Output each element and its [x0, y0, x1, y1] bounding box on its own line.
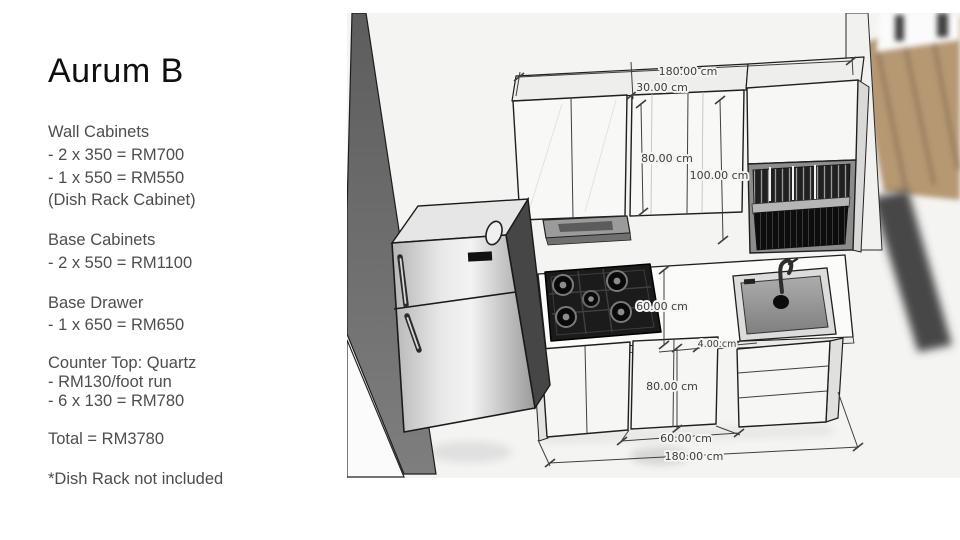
section-heading: Wall Cabinets: [48, 121, 338, 144]
dimension-label-overall-top: 180.00 cm: [659, 65, 718, 78]
price-line: (Dish Rack Cabinet): [48, 189, 338, 212]
price-line: - RM130/foot run: [48, 373, 338, 392]
dimension-label-base-height: 80.00 cm: [646, 380, 698, 393]
wall-cabinet-left: [513, 95, 627, 220]
refrigerator: [392, 199, 550, 432]
section-total: Total = RM3780: [48, 428, 338, 451]
section-heading: Counter Top: Quartz: [48, 354, 338, 373]
dimension-label-gap: 60.00 cm: [636, 300, 688, 313]
section-note: *Dish Rack not included: [48, 468, 338, 491]
burner: [583, 291, 599, 307]
note-line: *Dish Rack not included: [48, 468, 338, 491]
dimension-label-dishrack-height: 100.00 cm: [690, 169, 749, 182]
burner: [553, 275, 573, 295]
page-title: Aurum B: [48, 52, 338, 91]
price-line: - 1 x 550 = RM550: [48, 167, 338, 190]
section-wall-cabinets: Wall Cabinets - 2 x 350 = RM700 - 1 x 55…: [48, 121, 338, 212]
dimension-label-counter-thickness: 4.00 cm: [698, 339, 737, 350]
price-line: - 6 x 130 = RM780: [48, 392, 338, 411]
section-base-cabinets: Base Cabinets - 2 x 550 = RM1100: [48, 229, 338, 275]
dish-rack-upper-door: [747, 80, 858, 164]
burner: [611, 302, 631, 322]
quote-panel: Aurum B Wall Cabinets - 2 x 350 = RM700 …: [48, 52, 338, 508]
section-heading: Base Drawer: [48, 292, 338, 315]
base-drawer-unit: [737, 338, 843, 427]
price-line: - 1 x 650 = RM650: [48, 314, 338, 337]
sink-soap-dispenser: [744, 279, 755, 285]
section-counter-top: Counter Top: Quartz - RM130/foot run - 6…: [48, 354, 338, 411]
dimension-label-depth: 30.00 cm: [636, 81, 688, 94]
price-line: - 2 x 550 = RM1100: [48, 252, 338, 275]
sink-drain: [773, 295, 789, 309]
dimension-label-mid-width: 60.00 cm: [660, 432, 712, 445]
kitchen-render: 180.00 cm 30.00 cm 80.00 cm 100.00 cm 60…: [347, 13, 960, 478]
dish-rack-shelves: [752, 164, 850, 250]
range-hood: [543, 216, 631, 245]
total-line: Total = RM3780: [48, 428, 338, 451]
burner: [607, 271, 627, 291]
section-base-drawer: Base Drawer - 1 x 650 = RM650: [48, 292, 338, 338]
page-background: { "quote_panel": { "title": "Aurum B", "…: [0, 0, 960, 540]
burner: [556, 307, 576, 327]
fridge-logo: [468, 251, 492, 261]
price-line: - 2 x 350 = RM700: [48, 144, 338, 167]
section-heading: Base Cabinets: [48, 229, 338, 252]
base-cabinet-left: [533, 342, 630, 441]
dish-rack-cabinet: [747, 80, 869, 253]
dimension-label-overall-bottom: 180.00 cm: [665, 450, 724, 463]
dimension-label-wall-height: 80.00 cm: [641, 152, 693, 165]
